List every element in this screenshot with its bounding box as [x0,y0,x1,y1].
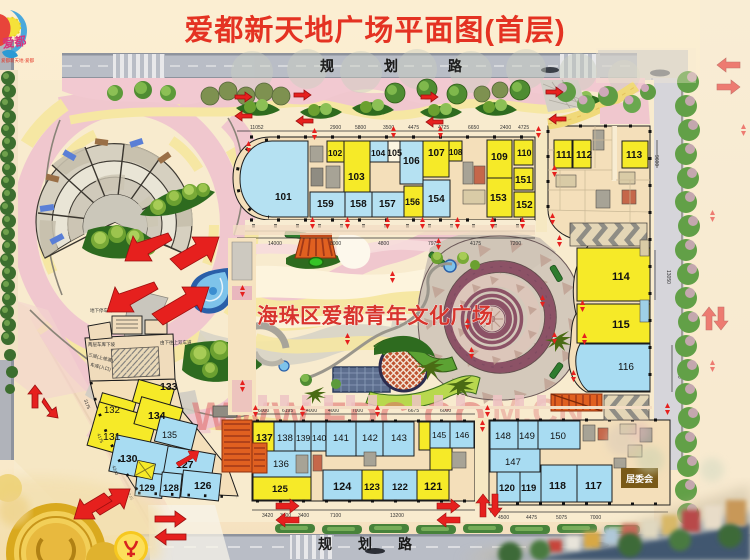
svg-text:125: 125 [272,484,289,495]
svg-text:13050: 13050 [665,270,671,284]
svg-text:129: 129 [139,483,155,494]
svg-text:4475: 4475 [526,515,537,521]
svg-text:规划路: 规划路 [318,536,438,552]
svg-text:121: 121 [424,481,442,493]
svg-text:139: 139 [296,433,310,443]
svg-text:11052: 11052 [250,125,264,131]
svg-text:132: 132 [104,405,120,416]
svg-text:由下往上双车道: 由下往上双车道 [160,339,192,346]
svg-text:140: 140 [312,433,326,443]
svg-text:4475: 4475 [408,125,419,131]
svg-text:152: 152 [516,200,533,211]
svg-text:158: 158 [350,199,367,210]
svg-text:111: 111 [556,150,572,161]
svg-text:135: 135 [162,430,177,440]
svg-text:112: 112 [576,150,593,161]
svg-text:居委会: 居委会 [626,473,654,484]
svg-text:7200: 7200 [510,241,521,247]
svg-text:101: 101 [275,192,292,203]
svg-text:115: 115 [612,319,630,331]
svg-text:128: 128 [163,483,179,494]
svg-text:126: 126 [194,480,212,492]
svg-text:8000: 8000 [330,241,341,247]
svg-text:146: 146 [455,430,469,440]
svg-text:108: 108 [449,148,463,157]
svg-text:147: 147 [505,457,521,468]
svg-text:7100: 7100 [330,513,341,519]
svg-text:两层车库下坡: 两层车库下坡 [88,341,115,348]
svg-text:136: 136 [273,459,289,470]
svg-text:110: 110 [517,148,532,158]
svg-text:海珠区爱都青年文化广场: 海珠区爱都青年文化广场 [257,304,494,328]
svg-text:3400: 3400 [298,513,309,519]
svg-text:123: 123 [364,482,380,493]
svg-text:4500: 4500 [498,515,509,521]
svg-text:106: 106 [403,156,420,167]
svg-text:156: 156 [405,197,420,207]
svg-text:133: 133 [160,381,178,393]
svg-text:150: 150 [550,431,566,442]
svg-text:116: 116 [618,362,634,373]
svg-text:142: 142 [362,433,378,444]
svg-text:141: 141 [333,433,349,444]
svg-text:113: 113 [626,150,643,161]
svg-text:爱都新天地·爱都: 爱都新天地·爱都 [1,57,34,64]
svg-text:151: 151 [515,175,532,186]
svg-text:122: 122 [392,482,408,493]
svg-text:159: 159 [317,199,334,210]
svg-text:6650: 6650 [468,125,479,131]
svg-text:13200: 13200 [390,513,404,519]
svg-text:154: 154 [428,194,445,205]
svg-text:5800: 5800 [355,125,366,131]
svg-text:145: 145 [432,430,446,440]
svg-text:103: 103 [348,172,365,183]
svg-text:5075: 5075 [556,515,567,521]
svg-text:119: 119 [521,483,536,494]
svg-text:137: 137 [256,433,273,444]
svg-text:爱都新天地广场平面图(首层): 爱都新天地广场平面图(首层) [184,14,565,47]
svg-text:7000: 7000 [590,515,601,521]
svg-text:138: 138 [277,433,293,444]
svg-text:117: 117 [585,480,602,492]
svg-text:4800: 4800 [378,241,389,247]
svg-text:148: 148 [495,431,511,442]
svg-text:143: 143 [391,433,407,444]
svg-text:134: 134 [148,410,166,422]
svg-text:149: 149 [519,431,535,442]
svg-text:规划路: 规划路 [320,58,512,74]
svg-text:131: 131 [103,431,121,443]
svg-text:9600: 9600 [653,155,659,166]
svg-text:157: 157 [379,199,396,210]
svg-text:109: 109 [491,152,508,163]
svg-text:14000: 14000 [268,241,282,247]
svg-text:3420: 3420 [262,513,273,519]
svg-text:4175: 4175 [470,241,481,247]
svg-text:4725: 4725 [518,125,529,131]
svg-text:153: 153 [490,193,507,204]
svg-text:118: 118 [549,480,566,492]
svg-text:2900: 2900 [330,125,341,131]
svg-text:114: 114 [612,271,631,283]
svg-text:104: 104 [371,148,385,158]
svg-text:2400: 2400 [500,125,511,131]
svg-text:124: 124 [333,481,352,493]
svg-text:120: 120 [499,483,515,494]
svg-text:130: 130 [120,453,138,465]
svg-text:105: 105 [387,148,402,158]
svg-text:102: 102 [328,148,342,158]
svg-text:107: 107 [428,148,445,159]
